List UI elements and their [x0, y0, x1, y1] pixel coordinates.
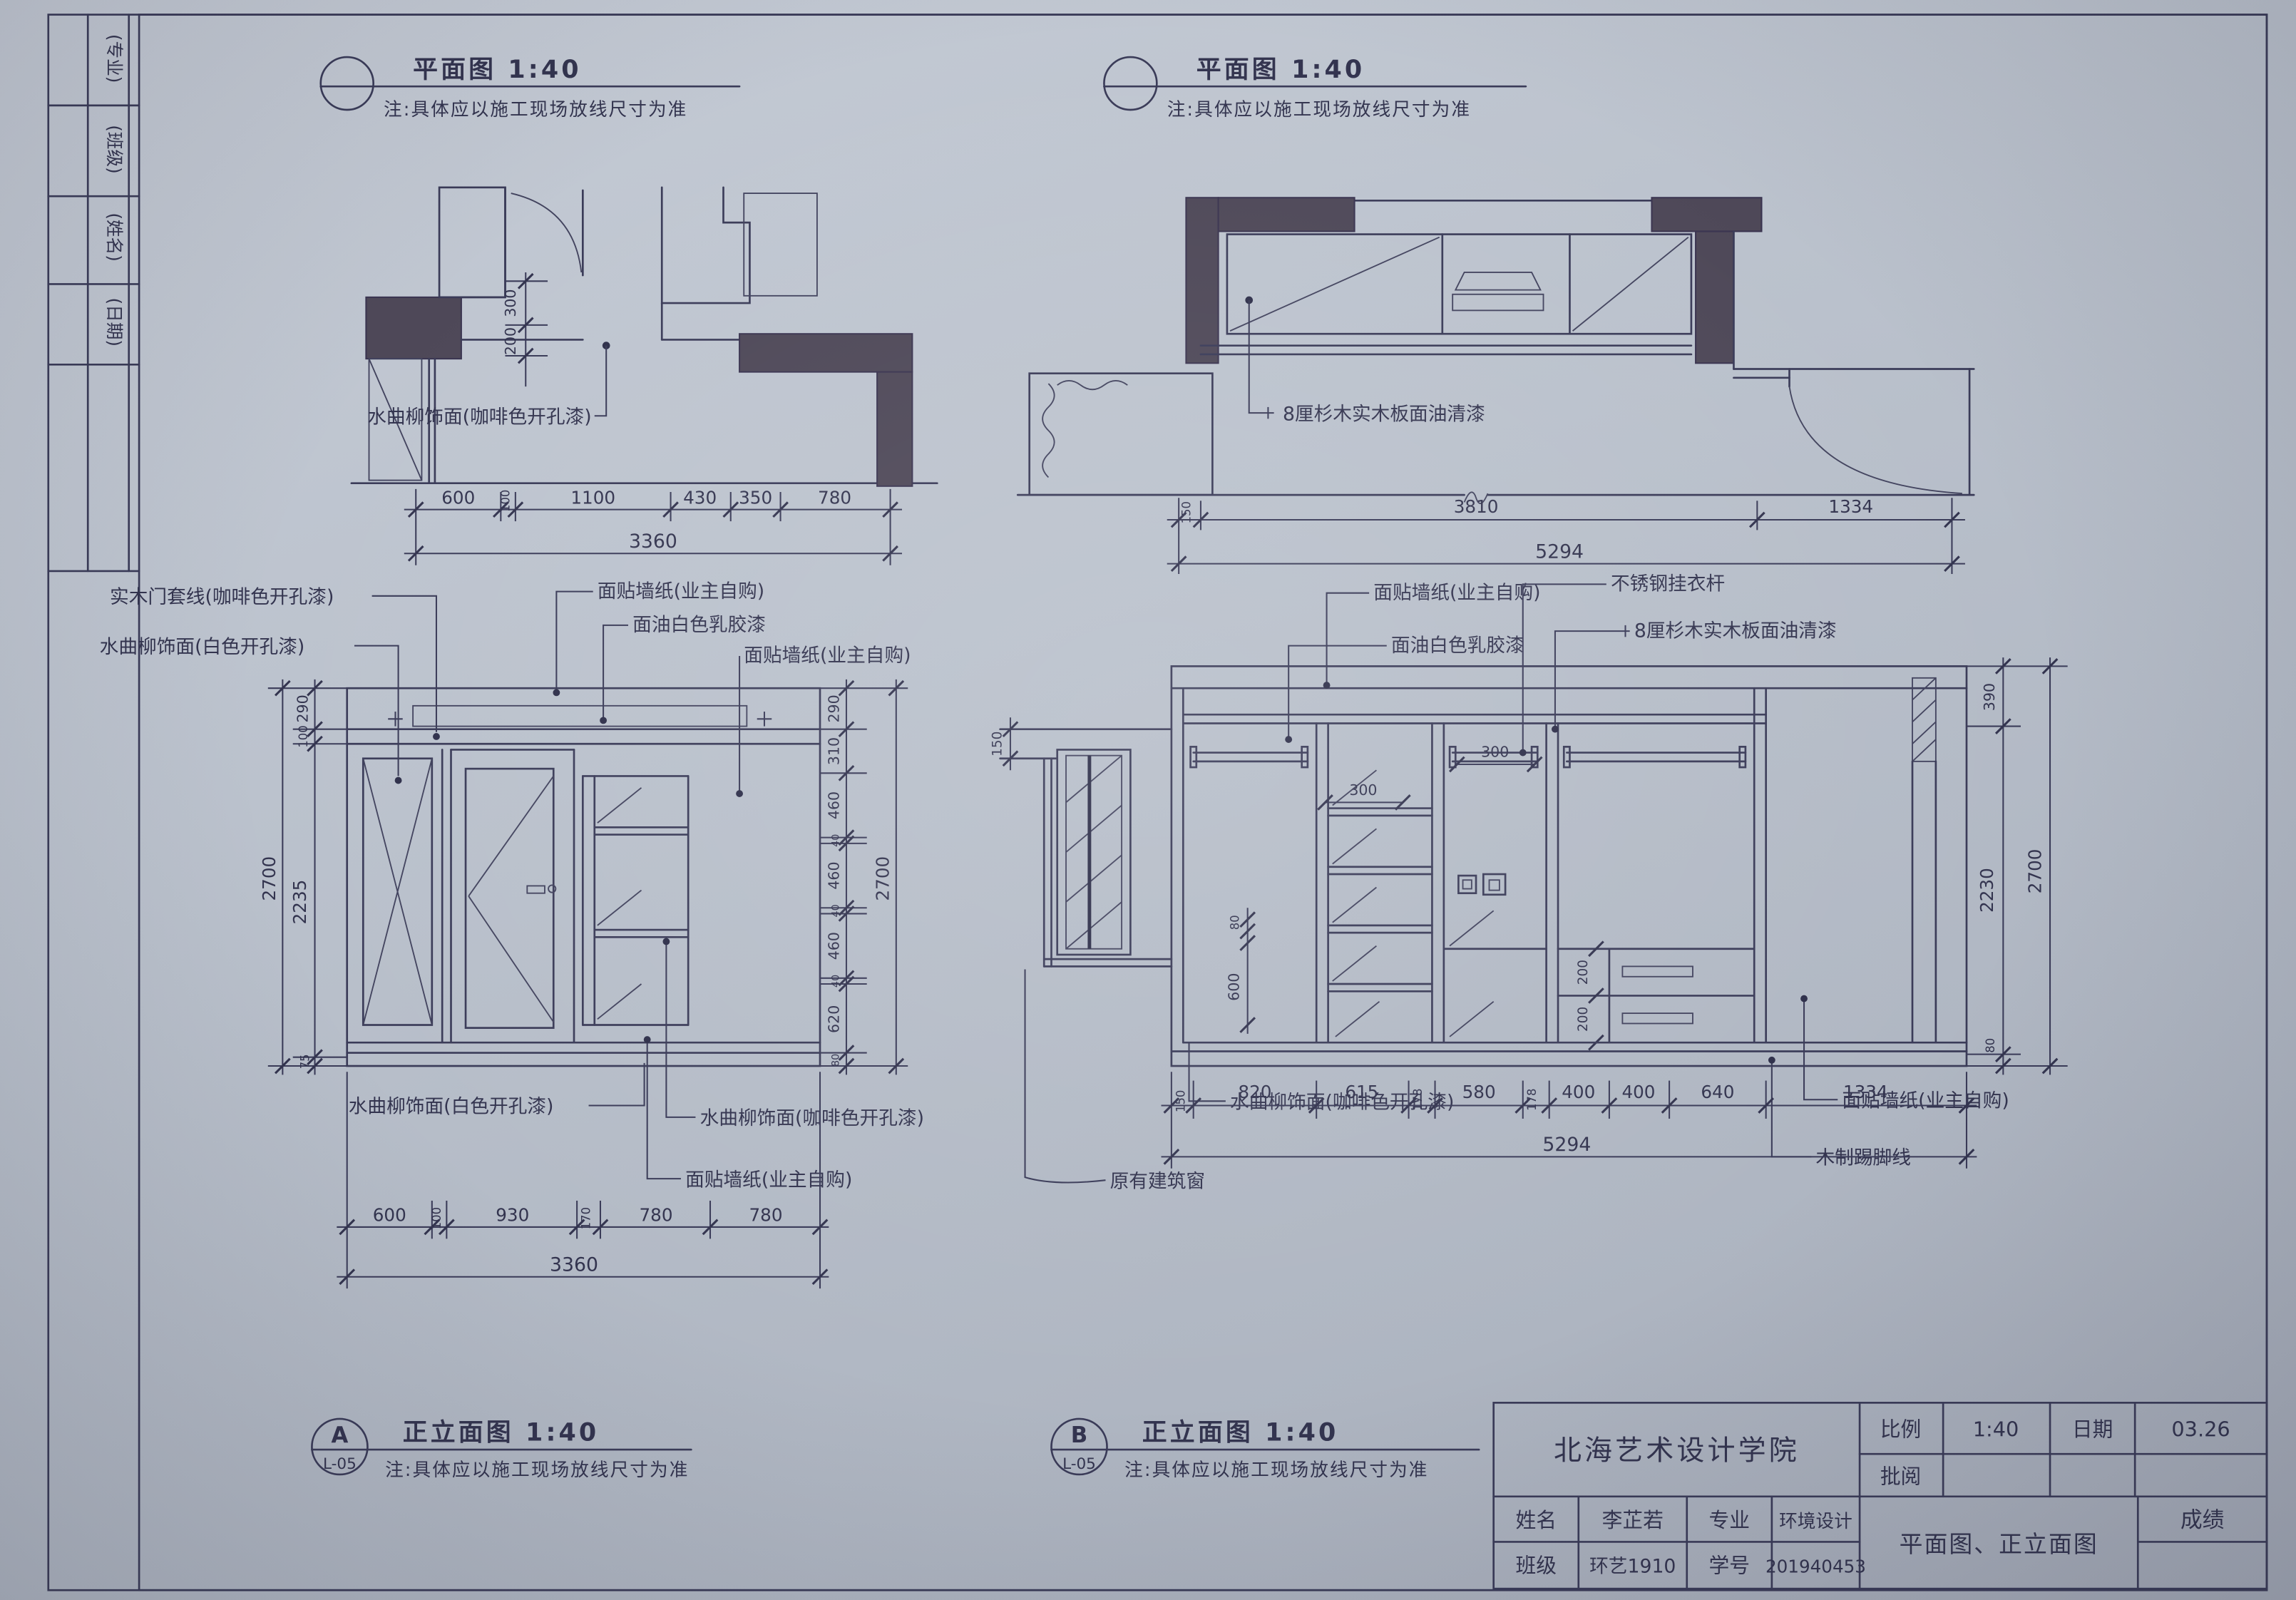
dim-total: 2700: [2025, 849, 2046, 894]
dim-label: 1334: [1843, 1082, 1888, 1102]
dim-label: 310: [826, 737, 843, 765]
dim-label: 820: [1238, 1082, 1271, 1102]
dim-label: 178: [1525, 1089, 1539, 1111]
dim-label: 460: [826, 791, 843, 819]
scale-value: 1:40: [1973, 1417, 2019, 1442]
drawing-title: 平面图、正立面图: [1900, 1531, 2098, 1558]
elevation-a: 实木门套线(咖啡色开孔漆) 水曲柳饰面(白色开孔漆) 面贴墙纸(业主自购) 面油…: [100, 580, 924, 1481]
elevation-b-note: 注:具体应以施工现场放线尺寸为准: [1124, 1460, 1428, 1481]
edge-cell-name: (姓名): [104, 212, 125, 261]
plan-a-note: 注:具体应以施工现场放线尺寸为准: [384, 99, 687, 120]
date-label: 日期: [2072, 1417, 2113, 1442]
dim-label: 600: [1225, 973, 1242, 1001]
dim-label: 780: [640, 1205, 673, 1226]
material-label: 面油白色乳胶漆: [1391, 635, 1524, 657]
scanned-drawing-sheet: (专业) (班级) (姓名) (日期) 平面图 1:40 注:具体应以施工现场放…: [0, 0, 2296, 1600]
drafting-paper: (专业) (班级) (姓名) (日期) 平面图 1:40 注:具体应以施工现场放…: [0, 0, 2296, 1600]
material-label: 原有建筑窗: [1110, 1170, 1205, 1192]
plan-b-title: 平面图 1:40: [1196, 56, 1365, 84]
elevation-a-sheet: L-05: [323, 1455, 357, 1473]
dim-label: 75: [298, 1054, 312, 1069]
dim-label: 580: [1462, 1082, 1496, 1102]
material-label: 8厘杉木实木板面油清漆: [1283, 403, 1485, 425]
dim-label: 615: [1345, 1082, 1378, 1102]
title-block: 北海艺术设计学院 比例 1:40 日期 03.26 批阅 姓名 李芷若 专业 环…: [1494, 1402, 2267, 1589]
major-value: 环境设计: [1779, 1511, 1852, 1532]
material-label: 水曲柳饰面(咖啡色开孔漆): [367, 406, 591, 428]
dim-label: 80: [1984, 1038, 1997, 1053]
dim-label: 100: [430, 1207, 444, 1229]
dim-label: 300: [1349, 781, 1377, 799]
dim-label: 930: [496, 1205, 529, 1226]
material-label: 面贴墙纸(业主自购): [744, 645, 911, 667]
dim-label: 100: [297, 725, 310, 747]
dim-label: 430: [683, 487, 717, 508]
dim-total: 5294: [1542, 1134, 1591, 1156]
dim-label: 1334: [1828, 496, 1873, 517]
dim-label: 300: [1481, 744, 1509, 761]
elevation-a-tag: A: [332, 1422, 349, 1448]
dim-label: 640: [1701, 1082, 1734, 1102]
dim-label: 460: [826, 861, 843, 889]
material-label: 面贴墙纸(业主自购): [598, 580, 764, 602]
material-label: 面油白色乳胶漆: [632, 614, 766, 636]
dim-label: 3810: [1454, 496, 1499, 517]
dim-label: 400: [1621, 1082, 1655, 1102]
class-label: 班级: [1515, 1554, 1557, 1578]
dim-label: 290: [826, 694, 843, 722]
dim-label: 80: [1228, 915, 1241, 930]
drawing-linework: (专业) (班级) (姓名) (日期) 平面图 1:40 注:具体应以施工现场放…: [0, 0, 2296, 1600]
material-label: 水曲柳饰面(咖啡色开孔漆): [700, 1107, 924, 1129]
dim-label: 80: [831, 1054, 842, 1067]
sheet-frame: (专业) (班级) (姓名) (日期): [48, 15, 2267, 1591]
dim-label: 170: [580, 1207, 593, 1229]
dim-label: 390: [1981, 683, 1998, 711]
plan-a: 平面图 1:40 注:具体应以施工现场放线尺寸为准 300 200 水曲柳饰面(…: [321, 56, 938, 565]
dim-label: 460: [826, 932, 843, 960]
elevation-a-title: 正立面图 1:40: [403, 1419, 600, 1447]
edge-cell-class: (班级): [104, 125, 125, 173]
scale-label: 比例: [1880, 1417, 1922, 1442]
elevation-b: 200 200 300 300 80 600: [990, 573, 2068, 1481]
dim-label: 600: [441, 487, 475, 508]
date-value: 03.26: [2171, 1417, 2230, 1442]
material-label: 面贴墙纸(业主自购): [685, 1169, 852, 1191]
dim-label: 600: [373, 1205, 406, 1226]
material-label: 水曲柳饰面(白色开孔漆): [100, 636, 305, 658]
dim-label: 780: [749, 1205, 783, 1226]
dim-label: 300: [502, 289, 519, 317]
dim-label: 150: [1174, 1090, 1187, 1112]
material-label: 8厘杉木实木板面油清漆: [1634, 620, 1837, 642]
elevation-b-title: 正立面图 1:40: [1142, 1419, 1339, 1447]
name-label: 姓名: [1515, 1508, 1557, 1532]
elevation-b-tag: B: [1071, 1422, 1087, 1448]
dim-total: 5294: [1535, 540, 1584, 563]
dim-label: 40: [831, 975, 842, 988]
review-label: 批阅: [1880, 1464, 1922, 1488]
dim-total: 2700: [259, 856, 280, 901]
dim-label: 178: [1411, 1089, 1425, 1111]
dim-label: 200: [1576, 1007, 1591, 1032]
dim-label: 290: [294, 694, 311, 722]
dim-label: 150: [1180, 501, 1194, 523]
class-value: 环艺1910: [1589, 1556, 1676, 1578]
dim-label: 780: [818, 487, 851, 508]
material-label: 不锈钢挂衣杆: [1611, 573, 1725, 595]
material-label: 水曲柳饰面(白色开孔漆): [349, 1096, 554, 1118]
name-value: 李芷若: [1602, 1508, 1664, 1532]
school-name: 北海艺术设计学院: [1554, 1435, 1800, 1467]
major-label: 专业: [1709, 1508, 1751, 1532]
dim-label: 350: [739, 487, 772, 508]
dim-label: 400: [1562, 1082, 1595, 1102]
dim-total: 3360: [550, 1254, 598, 1276]
student-id-label: 学号: [1709, 1554, 1751, 1578]
dim-label: 40: [831, 904, 842, 917]
student-id-value: 201940453: [1765, 1557, 1866, 1577]
dim-label: 1100: [570, 487, 615, 508]
plan-b-note: 注:具体应以施工现场放线尺寸为准: [1167, 99, 1471, 120]
material-label: 面贴墙纸(业主自购): [1373, 582, 1540, 604]
dim-label: 200: [502, 327, 519, 355]
dim-label: 200: [1576, 960, 1591, 985]
material-label: 木制踢脚线: [1815, 1147, 1910, 1169]
dim-label: 150: [990, 732, 1005, 757]
dim-label: 2235: [289, 880, 310, 925]
elevation-b-sheet: L-05: [1062, 1455, 1096, 1473]
plan-a-title: 平面图 1:40: [413, 56, 582, 84]
dim-label: 2230: [1977, 868, 1997, 913]
dim-total: 3360: [629, 530, 677, 553]
material-label: 实木门套线(咖啡色开孔漆): [110, 586, 334, 608]
dim-label: 40: [831, 834, 842, 847]
grade-label: 成绩: [2180, 1507, 2225, 1533]
plan-b: 平面图 1:40 注:具体应以施工现场放线尺寸为准 8厘杉木实木板面油清漆: [1018, 56, 1974, 574]
dim-label: 100: [499, 490, 513, 512]
elevation-a-note: 注:具体应以施工现场放线尺寸为准: [385, 1460, 689, 1481]
dim-total: 2700: [873, 856, 893, 901]
edge-cell-major: (专业): [104, 34, 125, 83]
edge-cell-date: (日期): [104, 298, 125, 347]
dim-label: 620: [826, 1005, 843, 1033]
